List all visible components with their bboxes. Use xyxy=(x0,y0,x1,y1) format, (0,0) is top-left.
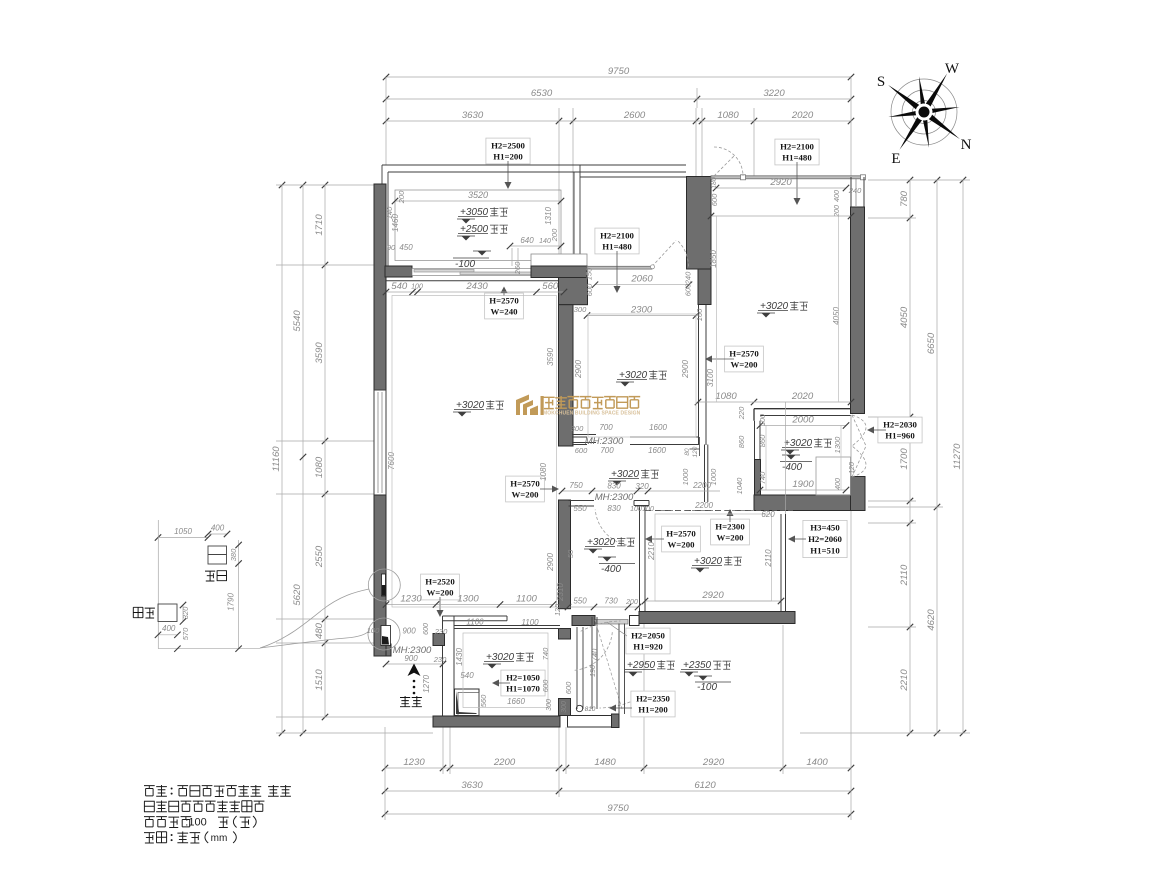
svg-text:180: 180 xyxy=(711,177,718,189)
svg-text:140: 140 xyxy=(385,206,394,219)
svg-text:600: 600 xyxy=(575,446,588,455)
svg-text:100: 100 xyxy=(642,506,654,513)
svg-text:H=2570: H=2570 xyxy=(729,348,759,358)
svg-text:2900: 2900 xyxy=(574,360,583,379)
svg-text:1100: 1100 xyxy=(466,618,484,627)
svg-text:H1=480: H1=480 xyxy=(782,153,812,163)
svg-text:H=2570: H=2570 xyxy=(510,478,540,488)
svg-text:3220: 3220 xyxy=(763,88,785,99)
svg-text:2110: 2110 xyxy=(764,549,773,568)
svg-text:-400: -400 xyxy=(782,462,802,473)
svg-text:1080: 1080 xyxy=(715,391,737,402)
svg-text:W=240: W=240 xyxy=(490,307,518,317)
svg-text:2210: 2210 xyxy=(899,669,910,692)
svg-text:1000: 1000 xyxy=(681,468,690,486)
svg-text:MOKCHUEN BUILDING SPACE DESIGN: MOKCHUEN BUILDING SPACE DESIGN xyxy=(543,411,641,417)
svg-text:5540: 5540 xyxy=(292,310,303,332)
svg-text:150: 150 xyxy=(585,267,594,280)
svg-text:H2=2350: H2=2350 xyxy=(636,693,670,703)
svg-text:200: 200 xyxy=(550,228,559,242)
svg-text:H2=2500: H2=2500 xyxy=(491,140,525,150)
svg-text:1700: 1700 xyxy=(899,448,910,470)
svg-text:3590: 3590 xyxy=(546,348,555,366)
svg-text:540: 540 xyxy=(391,281,408,292)
svg-text:830: 830 xyxy=(607,504,621,513)
svg-text:MH:2300: MH:2300 xyxy=(595,492,634,503)
svg-text:H=2300: H=2300 xyxy=(715,521,745,531)
svg-text:6120: 6120 xyxy=(694,780,716,791)
svg-text:2200: 2200 xyxy=(493,757,516,768)
svg-text:1430: 1430 xyxy=(455,648,464,666)
svg-text:400: 400 xyxy=(834,190,841,202)
svg-text:1600: 1600 xyxy=(648,446,666,455)
svg-text:5620: 5620 xyxy=(292,584,303,606)
svg-text:620: 620 xyxy=(761,510,775,519)
svg-text:3630: 3630 xyxy=(462,110,484,121)
svg-text:1100: 1100 xyxy=(521,618,539,627)
svg-text:S: S xyxy=(877,74,885,90)
svg-text:W=200: W=200 xyxy=(730,360,758,370)
svg-text:W=200: W=200 xyxy=(426,588,454,598)
svg-text:550: 550 xyxy=(573,504,587,513)
svg-text:860: 860 xyxy=(737,435,746,448)
svg-text:260: 260 xyxy=(513,261,522,275)
svg-text:320: 320 xyxy=(181,606,190,619)
svg-text:N: N xyxy=(961,137,972,153)
svg-text:2200: 2200 xyxy=(694,501,713,510)
svg-text:9750: 9750 xyxy=(607,803,629,814)
svg-text:570: 570 xyxy=(181,627,190,640)
svg-text:1080: 1080 xyxy=(717,110,739,121)
svg-text:H1=960: H1=960 xyxy=(885,431,915,441)
svg-text:810: 810 xyxy=(585,706,596,713)
svg-text:320: 320 xyxy=(635,482,649,491)
svg-text:2020: 2020 xyxy=(791,391,814,402)
svg-text:H1=1070: H1=1070 xyxy=(506,684,540,694)
svg-text:1400: 1400 xyxy=(806,757,828,768)
svg-text:1230: 1230 xyxy=(403,757,425,768)
svg-text:1230: 1230 xyxy=(400,594,422,605)
svg-text:W: W xyxy=(945,61,960,77)
svg-text:4050: 4050 xyxy=(899,306,910,328)
svg-text:700: 700 xyxy=(600,446,614,455)
svg-text:550: 550 xyxy=(573,597,587,606)
svg-text:2900: 2900 xyxy=(681,360,690,379)
svg-text:1310: 1310 xyxy=(544,207,553,225)
svg-text:600: 600 xyxy=(423,623,430,635)
svg-text:2920: 2920 xyxy=(702,757,725,768)
svg-text:6530: 6530 xyxy=(531,88,553,99)
svg-text:H=2520: H=2520 xyxy=(425,576,455,586)
svg-text:9750: 9750 xyxy=(608,66,630,77)
svg-text:230: 230 xyxy=(434,627,448,636)
svg-text:H2=2100: H2=2100 xyxy=(780,141,814,151)
svg-text:240: 240 xyxy=(848,186,862,195)
svg-text:2430: 2430 xyxy=(465,281,488,292)
svg-text:H2=2060: H2=2060 xyxy=(808,534,842,544)
svg-text:50: 50 xyxy=(566,549,575,558)
svg-text:-100: -100 xyxy=(455,259,475,270)
svg-text:240: 240 xyxy=(684,271,693,285)
svg-text:E: E xyxy=(891,151,900,167)
svg-text:1050: 1050 xyxy=(174,527,192,536)
svg-text:1270: 1270 xyxy=(422,675,431,693)
svg-text:2550: 2550 xyxy=(314,545,325,568)
svg-text:3520: 3520 xyxy=(468,190,488,200)
svg-text:600: 600 xyxy=(684,283,693,296)
svg-text:560: 560 xyxy=(479,694,488,707)
svg-text:480: 480 xyxy=(314,622,325,639)
svg-text:-400: -400 xyxy=(601,564,621,575)
svg-text:W=200: W=200 xyxy=(716,533,744,543)
svg-text:400: 400 xyxy=(211,524,225,533)
svg-text:H1=510: H1=510 xyxy=(810,545,840,555)
svg-text:1480: 1480 xyxy=(594,757,616,768)
svg-text:300: 300 xyxy=(574,305,587,314)
svg-text:W=200: W=200 xyxy=(667,540,695,550)
svg-text:80: 80 xyxy=(684,448,691,456)
svg-text:2020: 2020 xyxy=(791,110,814,121)
svg-text:4050: 4050 xyxy=(832,307,841,325)
svg-text:120: 120 xyxy=(849,462,856,474)
svg-text:100: 100 xyxy=(630,506,642,513)
svg-text:1660: 1660 xyxy=(507,697,525,706)
svg-text:200: 200 xyxy=(625,599,638,606)
svg-text:4620: 4620 xyxy=(926,609,937,631)
svg-text:300: 300 xyxy=(546,699,553,711)
svg-text:90: 90 xyxy=(387,243,396,252)
svg-text:400: 400 xyxy=(835,478,842,490)
svg-text:900: 900 xyxy=(402,627,416,636)
svg-text:H1=920: H1=920 xyxy=(633,642,663,652)
svg-text:540: 540 xyxy=(460,671,474,680)
svg-text:560: 560 xyxy=(542,281,559,292)
svg-text:640: 640 xyxy=(520,236,534,245)
svg-text:100: 100 xyxy=(367,626,380,635)
svg-text:1000: 1000 xyxy=(709,468,718,486)
svg-text:H2=2050: H2=2050 xyxy=(631,630,665,640)
svg-text:1710: 1710 xyxy=(314,214,325,236)
svg-text:MH:2300: MH:2300 xyxy=(585,436,624,447)
svg-text:730: 730 xyxy=(604,597,618,606)
svg-text:3100: 3100 xyxy=(706,369,715,387)
svg-text:220: 220 xyxy=(737,406,746,420)
svg-text:W=200: W=200 xyxy=(511,490,539,500)
svg-text:2600: 2600 xyxy=(623,110,646,121)
svg-text:-100: -100 xyxy=(697,682,717,693)
svg-text:860: 860 xyxy=(758,434,767,447)
svg-text:H=2570: H=2570 xyxy=(666,528,696,538)
svg-text:380: 380 xyxy=(229,548,238,561)
svg-text:740: 740 xyxy=(541,647,550,660)
svg-text:200: 200 xyxy=(397,190,406,204)
svg-text:2110: 2110 xyxy=(899,564,910,586)
svg-text:H=2570: H=2570 xyxy=(489,295,519,305)
svg-text:mm: mm xyxy=(211,833,228,844)
svg-text:830: 830 xyxy=(607,482,621,491)
svg-text:300: 300 xyxy=(571,424,584,433)
svg-text:1790: 1790 xyxy=(227,593,236,611)
svg-text:2900: 2900 xyxy=(546,553,555,572)
svg-text:600: 600 xyxy=(585,283,594,296)
svg-text:2920: 2920 xyxy=(701,590,724,601)
svg-text:300: 300 xyxy=(561,701,568,713)
svg-text:600: 600 xyxy=(710,193,719,206)
svg-text:1040: 1040 xyxy=(735,477,744,495)
svg-text:740: 740 xyxy=(590,648,599,661)
svg-text:1300: 1300 xyxy=(457,594,479,605)
svg-text:7600: 7600 xyxy=(387,452,396,470)
svg-text:1510: 1510 xyxy=(314,669,325,691)
svg-text:120: 120 xyxy=(555,604,562,616)
svg-text:120: 120 xyxy=(692,446,699,457)
svg-text:H2=2030: H2=2030 xyxy=(883,419,917,429)
svg-text:740: 740 xyxy=(758,471,767,484)
svg-text:100: 100 xyxy=(760,414,767,426)
svg-text:H1=200: H1=200 xyxy=(638,705,668,715)
svg-text:190: 190 xyxy=(590,665,597,677)
svg-text:2310: 2310 xyxy=(556,583,565,602)
svg-text:600: 600 xyxy=(541,679,550,692)
svg-text:900: 900 xyxy=(404,654,418,663)
svg-text:H2=2100: H2=2100 xyxy=(600,230,634,240)
svg-text:1080: 1080 xyxy=(539,463,548,481)
svg-text:H2=1050: H2=1050 xyxy=(506,672,540,682)
svg-text:H3=450: H3=450 xyxy=(810,523,840,533)
svg-text:750: 750 xyxy=(569,481,583,490)
svg-text:600: 600 xyxy=(564,681,573,694)
svg-text:450: 450 xyxy=(399,243,413,252)
svg-text:700: 700 xyxy=(599,423,613,432)
svg-text:6650: 6650 xyxy=(926,332,937,354)
svg-text:100: 100 xyxy=(411,284,423,291)
svg-text:2210: 2210 xyxy=(647,542,656,561)
svg-text:H1=200: H1=200 xyxy=(493,152,523,162)
svg-text::100: :100 xyxy=(185,817,206,829)
svg-text:780: 780 xyxy=(899,190,910,207)
svg-text:2060: 2060 xyxy=(630,274,653,285)
svg-text:2000: 2000 xyxy=(791,415,814,426)
svg-text:1100: 1100 xyxy=(516,594,537,605)
svg-text:11160: 11160 xyxy=(271,446,282,472)
svg-text:1300: 1300 xyxy=(833,436,842,454)
svg-text:11270: 11270 xyxy=(952,443,963,470)
svg-text:3630: 3630 xyxy=(461,780,483,791)
svg-text:1900: 1900 xyxy=(792,479,814,490)
svg-text:400: 400 xyxy=(162,624,176,633)
svg-text:1080: 1080 xyxy=(314,456,325,478)
svg-text:2920: 2920 xyxy=(769,177,792,188)
svg-text:1600: 1600 xyxy=(649,423,667,432)
svg-text:H1=480: H1=480 xyxy=(602,242,632,252)
svg-text:3590: 3590 xyxy=(314,342,325,364)
